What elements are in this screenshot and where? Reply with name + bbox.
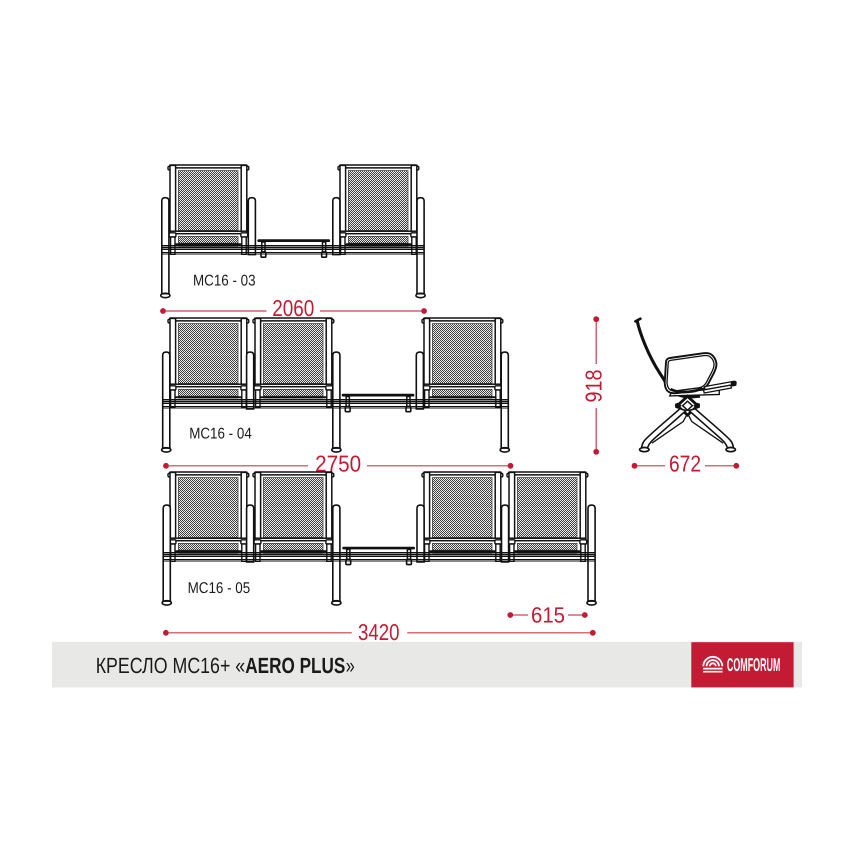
svg-text:»: » <box>346 653 355 678</box>
svg-text:672: 672 <box>669 450 701 476</box>
svg-text:MC16 - 03: MC16 - 03 <box>193 272 256 289</box>
svg-text:КРЕСЛО МС16+ «: КРЕСЛО МС16+ « <box>96 653 246 678</box>
svg-text:MC16 - 04: MC16 - 04 <box>189 426 252 443</box>
svg-text:615: 615 <box>531 602 565 627</box>
svg-text:AERO PLUS: AERO PLUS <box>245 653 345 678</box>
svg-text:COMFORUM: COMFORUM <box>727 654 781 675</box>
svg-text:918: 918 <box>581 370 607 403</box>
svg-text:2060: 2060 <box>272 295 314 321</box>
svg-text:3420: 3420 <box>358 619 400 645</box>
svg-text:MC16 - 05: MC16 - 05 <box>188 580 251 597</box>
